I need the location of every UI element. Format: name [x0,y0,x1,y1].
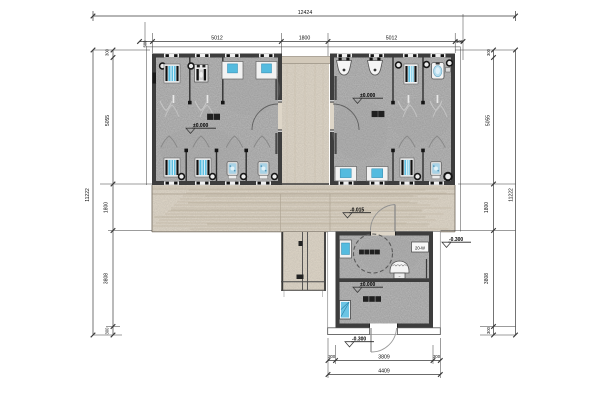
svg-text:~: ~ [398,275,400,279]
svg-text:11222: 11222 [85,188,91,202]
svg-text:11222: 11222 [509,188,515,202]
svg-text:300: 300 [456,39,464,44]
svg-text:4409: 4409 [378,369,390,375]
svg-text:3808: 3808 [104,273,110,284]
svg-text:1800: 1800 [484,202,490,213]
svg-text:300: 300 [105,48,110,56]
svg-text:300: 300 [486,326,491,334]
svg-text:3808: 3808 [484,273,490,284]
svg-text:1800: 1800 [299,36,311,42]
svg-text:300: 300 [486,48,491,56]
svg-text:300: 300 [328,354,336,359]
svg-text:12424: 12424 [298,10,313,16]
svg-text:1800: 1800 [104,202,110,213]
svg-text:5012: 5012 [386,36,398,42]
svg-text:3809: 3809 [378,355,390,361]
svg-text:5055: 5055 [486,115,492,126]
svg-text:5055: 5055 [105,115,111,126]
svg-text:300: 300 [105,327,110,335]
svg-text:5012: 5012 [211,36,223,42]
svg-text:300: 300 [433,354,441,359]
svg-text:20-W: 20-W [415,245,425,250]
